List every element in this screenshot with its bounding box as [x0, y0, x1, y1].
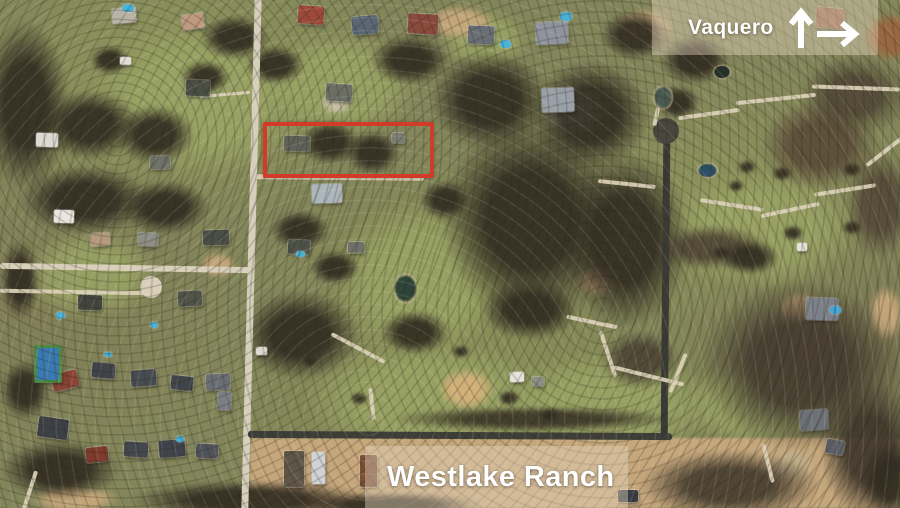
label-vaquero: Vaquero — [652, 0, 878, 55]
satellite-map-screenshot: Vaquero Westlake Ranch — [0, 0, 900, 508]
vaquero-label-text: Vaquero — [688, 16, 774, 40]
north-arrow-icon — [788, 7, 814, 49]
east-arrow-icon — [816, 20, 860, 48]
direction-arrows — [788, 7, 860, 49]
label-westlake-ranch: Westlake Ranch — [365, 446, 628, 508]
westlake-ranch-label-text: Westlake Ranch — [387, 461, 615, 494]
label-layer: Vaquero Westlake Ranch — [0, 0, 900, 508]
